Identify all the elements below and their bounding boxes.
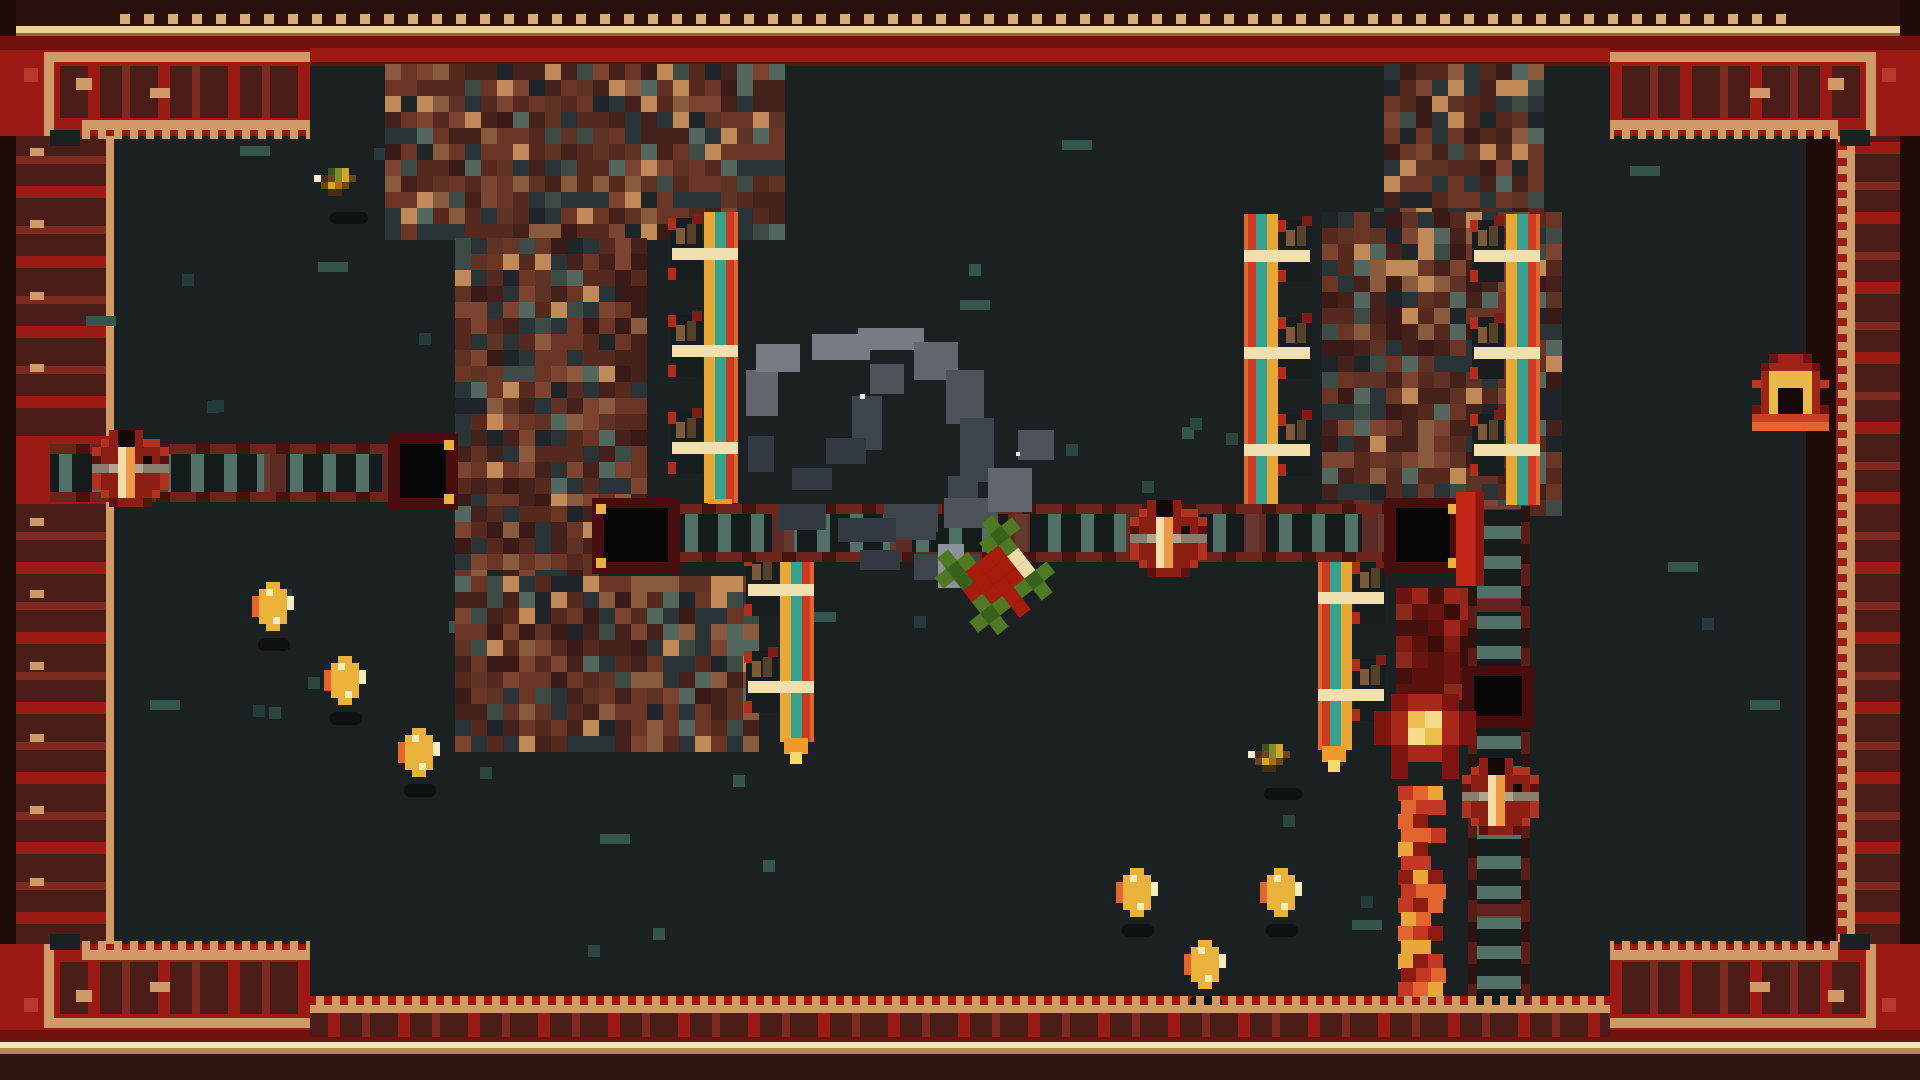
brick-pixel <box>1480 144 1496 160</box>
brick-pixel <box>1546 452 1562 468</box>
firecracker-wick <box>676 422 685 438</box>
sprite-pixel <box>1761 405 1770 414</box>
brick-pixel <box>519 554 535 570</box>
background-dash <box>1630 166 1660 176</box>
brick-pixel <box>599 430 615 446</box>
firecracker-cap <box>1494 216 1504 226</box>
brick-pixel <box>1434 372 1450 388</box>
brick-pixel <box>695 624 711 640</box>
track-gap-tile[interactable] <box>1384 498 1462 574</box>
sprite-pixel <box>1198 534 1207 543</box>
brick-pixel <box>1512 160 1528 176</box>
sprite-pixel <box>152 481 161 490</box>
sprite-pixel <box>1139 526 1148 535</box>
track-gap-tile[interactable] <box>388 434 458 510</box>
brick-pixel <box>583 624 599 640</box>
sprite-pixel <box>1269 765 1276 772</box>
sprite-pixel <box>1190 543 1199 552</box>
brick-pixel <box>599 478 615 494</box>
brick-pixel <box>417 96 433 112</box>
sprite-pixel <box>1288 896 1295 903</box>
sprite-pixel <box>331 670 338 677</box>
brick-pixel <box>663 704 679 720</box>
sprite-pixel <box>1144 875 1151 882</box>
brick-pixel <box>487 350 503 366</box>
firecracker-fuse-red <box>1352 659 1360 671</box>
sprite-pixel <box>1522 818 1531 827</box>
brick-pixel <box>711 576 727 592</box>
sprite-pixel <box>1267 889 1274 896</box>
brick-pixel <box>519 238 535 254</box>
flame-pixel <box>1401 828 1416 843</box>
sprite-pixel <box>1144 896 1151 903</box>
brick-pixel <box>609 160 625 176</box>
sprite-pixel <box>1374 728 1391 745</box>
sprite-pixel <box>1147 526 1156 535</box>
brick-pixel <box>1386 276 1402 292</box>
sprite-pixel <box>1190 560 1199 569</box>
flame-pixel <box>1413 842 1428 857</box>
gold-coin[interactable] <box>1184 940 1226 989</box>
brick-pixel <box>471 640 487 656</box>
brick-pixel <box>1400 64 1416 80</box>
brick-pixel <box>487 656 503 672</box>
brick-pixel <box>631 478 647 494</box>
brick-pixel <box>1418 372 1434 388</box>
sprite-pixel <box>1522 801 1531 810</box>
brick-pixel <box>1448 96 1464 112</box>
sprite-pixel <box>1471 801 1480 810</box>
sprite-pixel <box>1123 882 1130 889</box>
coin-shadow <box>1122 924 1154 937</box>
sprite-pixel <box>1190 517 1199 526</box>
brick-pixel <box>625 128 641 144</box>
sprite-pixel <box>1276 758 1283 765</box>
brick-pixel <box>401 224 417 240</box>
brick-pixel <box>1546 420 1562 436</box>
sprite-pixel <box>1144 903 1151 910</box>
brick-pixel <box>455 270 471 286</box>
background-speckle <box>1066 444 1078 456</box>
gold-coin[interactable] <box>324 656 366 705</box>
brick-pixel <box>1322 292 1338 308</box>
brick-pixel <box>583 462 599 478</box>
brick-pixel <box>503 688 519 704</box>
background-speckle <box>1190 418 1202 430</box>
sprite-pixel <box>1137 868 1144 875</box>
brick-pixel <box>1354 244 1370 260</box>
brick-pixel <box>551 350 567 366</box>
sprite-pixel <box>1505 818 1514 827</box>
sprite-pixel <box>252 610 259 617</box>
flame-pixel <box>1416 800 1431 815</box>
sprite-pixel <box>1267 896 1274 903</box>
sprite-pixel <box>1173 560 1182 569</box>
brick-pixel <box>471 672 487 688</box>
bird-critter[interactable] <box>314 168 356 196</box>
sprite-pixel <box>101 490 110 499</box>
brick-pixel <box>1448 64 1464 80</box>
brick-pixel <box>599 656 615 672</box>
brick-pixel <box>1434 228 1450 244</box>
brick-pixel <box>1546 404 1562 420</box>
sprite-pixel <box>1156 568 1165 577</box>
brick-pixel <box>695 672 711 688</box>
firecracker-wick <box>763 657 772 677</box>
gold-coin[interactable] <box>398 728 440 777</box>
sprite-pixel <box>419 742 426 749</box>
firecracker-fuse-red <box>744 701 752 713</box>
brick-pixel <box>465 96 481 112</box>
brick-pixel <box>673 192 689 208</box>
brick-pixel <box>455 592 471 608</box>
brick-pixel <box>1428 668 1444 684</box>
brick-pixel <box>545 64 561 80</box>
sprite-pixel <box>1488 818 1497 827</box>
brick-pixel <box>497 112 513 128</box>
sprite-pixel <box>1522 792 1531 801</box>
brick-pixel <box>1432 64 1448 80</box>
brick-pixel <box>1402 388 1418 404</box>
brick-pixel <box>465 80 481 96</box>
brick-pixel <box>1418 292 1434 308</box>
sprite-pixel <box>345 677 352 684</box>
brick-pixel <box>1354 260 1370 276</box>
brick-pixel <box>631 688 647 704</box>
sprite-pixel <box>419 728 426 735</box>
sprite-pixel <box>1513 792 1522 801</box>
sprite-pixel <box>1139 534 1148 543</box>
brick-pixel <box>551 704 567 720</box>
sprite-pixel <box>1471 784 1480 793</box>
corner-dark-notch <box>50 934 80 950</box>
brick-pixel <box>529 80 545 96</box>
brick-pixel <box>577 192 593 208</box>
brick-pixel <box>1528 176 1544 192</box>
flame-pixel <box>1398 842 1413 857</box>
brick-pixel <box>1402 260 1418 276</box>
brick-pixel <box>519 538 535 554</box>
brick-pixel <box>1386 436 1402 452</box>
brick-pixel <box>561 80 577 96</box>
brazier-pot[interactable] <box>1130 500 1207 577</box>
brick-pixel <box>1338 388 1354 404</box>
bird-critter[interactable] <box>1248 744 1290 772</box>
brick-pixel <box>417 224 433 240</box>
sprite-pixel <box>1267 875 1274 882</box>
brick-pixel <box>1464 64 1480 80</box>
brick-pixel <box>593 128 609 144</box>
sprite-pixel <box>126 447 135 456</box>
sprite-pixel <box>1147 517 1156 526</box>
sprite-pixel <box>259 596 266 603</box>
sprite-pixel <box>1530 775 1539 784</box>
firecracker-fuse-red <box>1278 367 1286 379</box>
brick-pixel <box>455 366 471 382</box>
brick-pixel <box>471 688 487 704</box>
brick-pixel <box>519 366 535 382</box>
brick-pixel <box>519 334 535 350</box>
brick-pixel <box>1546 308 1562 324</box>
brick-pixel <box>535 554 551 570</box>
brick-pixel <box>433 176 449 192</box>
brick-pixel <box>1434 260 1450 276</box>
flame-fountain-stream <box>1398 786 1446 1002</box>
brick-pixel <box>673 176 689 192</box>
sprite-pixel <box>331 684 338 691</box>
brick-pixel <box>625 160 641 176</box>
brick-pixel <box>503 430 519 446</box>
brick-pixel <box>561 160 577 176</box>
brick-pixel <box>689 64 705 80</box>
brick-pixel <box>1386 356 1402 372</box>
brick-pixel <box>1322 244 1338 260</box>
brick-pixel <box>1338 276 1354 292</box>
brick-pixel <box>487 522 503 538</box>
brick-pixel <box>401 160 417 176</box>
sprite-pixel <box>126 473 135 482</box>
brick-pixel <box>631 254 647 270</box>
firecracker-wick <box>687 321 696 341</box>
sprite-pixel <box>1505 801 1514 810</box>
brick-pixel <box>583 478 599 494</box>
brick-pixel <box>647 592 663 608</box>
brick-pixel <box>1528 128 1544 144</box>
brick-pixel <box>711 704 727 720</box>
gold-coin[interactable] <box>1260 868 1302 917</box>
brick-pixel <box>567 720 583 736</box>
brick-pixel <box>519 640 535 656</box>
brick-pixel <box>737 96 753 112</box>
brick-pixel <box>599 462 615 478</box>
corner-red-square <box>1882 68 1896 82</box>
brick-pixel <box>551 302 567 318</box>
brick-pixel <box>1512 128 1528 144</box>
sprite-pixel <box>1513 775 1522 784</box>
brick-pixel <box>567 736 583 752</box>
brick-pixel <box>721 144 737 160</box>
sprite-pixel <box>1442 762 1459 779</box>
sprite-pixel <box>1198 968 1205 975</box>
brick-pixel <box>449 80 465 96</box>
brick-pixel <box>1338 404 1354 420</box>
sprite-pixel <box>1248 751 1255 758</box>
sprite-pixel <box>266 589 273 596</box>
sprite-pixel <box>1769 405 1778 414</box>
sprite-pixel <box>1164 543 1173 552</box>
sprite-pixel <box>1530 809 1539 818</box>
sprite-pixel <box>1269 744 1276 751</box>
gold-coin[interactable] <box>252 582 294 631</box>
brick-pixel <box>551 538 567 554</box>
brick-pixel <box>1416 112 1432 128</box>
corner-key-band <box>1610 66 1860 118</box>
brick-pixel <box>737 144 753 160</box>
brick-pixel <box>487 398 503 414</box>
tile-gold-pixel <box>596 504 606 514</box>
brick-pixel <box>503 382 519 398</box>
brick-pixel <box>551 334 567 350</box>
sprite-pixel <box>433 742 440 749</box>
sprite-pixel <box>1116 896 1123 903</box>
sprite-pixel <box>1295 889 1302 896</box>
sprite-pixel <box>1820 422 1829 431</box>
brick-pixel <box>647 656 663 672</box>
sprite-pixel <box>419 749 426 756</box>
sprite-pixel <box>1147 500 1156 509</box>
firecracker-cream-band <box>1244 250 1310 262</box>
brick-pixel <box>1450 244 1466 260</box>
background-speckle <box>182 274 194 286</box>
brick-pixel <box>727 688 743 704</box>
sprite-pixel <box>280 589 287 596</box>
sprite-pixel <box>345 656 352 663</box>
brick-pixel <box>679 704 695 720</box>
brick-pixel <box>503 736 519 752</box>
brick-pixel <box>535 624 551 640</box>
sprite-pixel <box>1812 405 1821 414</box>
brick-pixel <box>1448 160 1464 176</box>
corner-ornament <box>1610 36 1920 152</box>
sprite-pixel <box>331 691 338 698</box>
sprite-pixel <box>1262 765 1269 772</box>
brick-pixel <box>1400 192 1416 208</box>
brick-pixel <box>631 366 647 382</box>
brick-pixel <box>487 446 503 462</box>
sprite-pixel <box>152 439 161 448</box>
sprite-pixel <box>273 617 280 624</box>
brick-pixel <box>567 350 583 366</box>
firecracker-cream-band <box>1244 347 1310 359</box>
brick-pixel <box>535 286 551 302</box>
brick-pixel <box>1338 420 1354 436</box>
sprite-pixel <box>1274 889 1281 896</box>
brick-pixel <box>519 254 535 270</box>
brick-pixel <box>455 382 471 398</box>
brick-pixel <box>519 286 535 302</box>
sprite-pixel <box>1191 947 1198 954</box>
brick-pixel <box>1370 468 1386 484</box>
brick-pixel <box>455 538 471 554</box>
brick-pixel <box>1418 228 1434 244</box>
brick-pixel <box>471 656 487 672</box>
firecracker-cream-band <box>748 681 814 693</box>
sprite-pixel <box>1812 422 1821 431</box>
brick-pixel <box>385 192 401 208</box>
tile-black-core <box>1474 676 1522 716</box>
brick-pixel <box>679 688 695 704</box>
brick-pixel <box>1354 452 1370 468</box>
sprite-pixel <box>266 624 273 631</box>
sprite-pixel <box>1425 745 1442 762</box>
sprite-pixel <box>345 691 352 698</box>
brick-pixel <box>529 112 545 128</box>
firecracker-cap <box>692 311 702 321</box>
brazier-pot[interactable] <box>92 430 169 507</box>
brick-pixel <box>503 608 519 624</box>
brick-pixel <box>641 144 657 160</box>
brick-pixel <box>705 64 721 80</box>
brick-pixel <box>711 640 727 656</box>
brick-pixel <box>529 64 545 80</box>
brick-pixel <box>567 506 583 522</box>
firecracker-wick <box>1297 420 1306 440</box>
sprite-pixel <box>398 749 405 756</box>
brick-pixel <box>1416 96 1432 112</box>
sprite-pixel <box>1288 889 1295 896</box>
shrine-door[interactable] <box>1752 354 1829 431</box>
sprite-pixel <box>1156 543 1165 552</box>
sprite-pixel <box>1522 775 1531 784</box>
sprite-pixel <box>1130 526 1139 535</box>
gold-coin[interactable] <box>1116 868 1158 917</box>
sprite-pixel <box>1488 775 1497 784</box>
sprite-pixel <box>1123 903 1130 910</box>
sprite-pixel <box>1778 363 1787 372</box>
brick-pixel <box>615 238 631 254</box>
gold-line-top <box>0 26 1920 33</box>
brick-pixel <box>1386 212 1402 228</box>
brick-pixel <box>519 350 535 366</box>
brick-pixel <box>401 128 417 144</box>
sprite-pixel <box>135 464 144 473</box>
brick-pixel <box>679 640 695 656</box>
background-dash <box>318 262 348 272</box>
sprite-pixel <box>1795 388 1804 397</box>
sprite-pixel <box>1181 534 1190 543</box>
brick-pixel <box>567 462 583 478</box>
smoke-puff <box>1018 430 1054 460</box>
sprite-pixel <box>1513 809 1522 818</box>
sprite-pixel <box>109 490 118 499</box>
sprite-pixel <box>1116 889 1123 896</box>
sprite-pixel <box>1769 422 1778 431</box>
brick-pixel <box>519 624 535 640</box>
brick-pixel <box>497 80 513 96</box>
sprite-pixel <box>1173 509 1182 518</box>
brick-pixel <box>385 224 401 240</box>
brick-pixel <box>711 688 727 704</box>
brick-pixel <box>481 144 497 160</box>
sprite-pixel <box>1778 414 1787 423</box>
sprite-pixel <box>1181 517 1190 526</box>
sprite-pixel <box>1295 882 1302 889</box>
brick-pixel <box>1370 388 1386 404</box>
sprite-pixel <box>118 473 127 482</box>
brick-pixel <box>487 462 503 478</box>
brick-pixel <box>1546 372 1562 388</box>
brick-pixel <box>519 522 535 538</box>
sprite-pixel <box>118 439 127 448</box>
brick-pixel <box>599 350 615 366</box>
fuse-flame-icon <box>1328 760 1340 772</box>
sprite-pixel <box>426 735 433 742</box>
brick-pixel <box>519 608 535 624</box>
brick-pixel <box>519 430 535 446</box>
brick-pixel <box>1322 404 1338 420</box>
brick-pixel <box>545 176 561 192</box>
brick-pixel <box>1354 276 1370 292</box>
sprite-pixel <box>1274 910 1281 917</box>
brick-pixel <box>631 672 647 688</box>
brick-pixel <box>1384 160 1400 176</box>
sprite-pixel <box>412 749 419 756</box>
brick-pixel <box>455 688 471 704</box>
brick-pixel <box>433 208 449 224</box>
brick-pixel <box>679 576 695 592</box>
track-gap-tile[interactable] <box>592 498 680 574</box>
sprite-pixel <box>1164 526 1173 535</box>
